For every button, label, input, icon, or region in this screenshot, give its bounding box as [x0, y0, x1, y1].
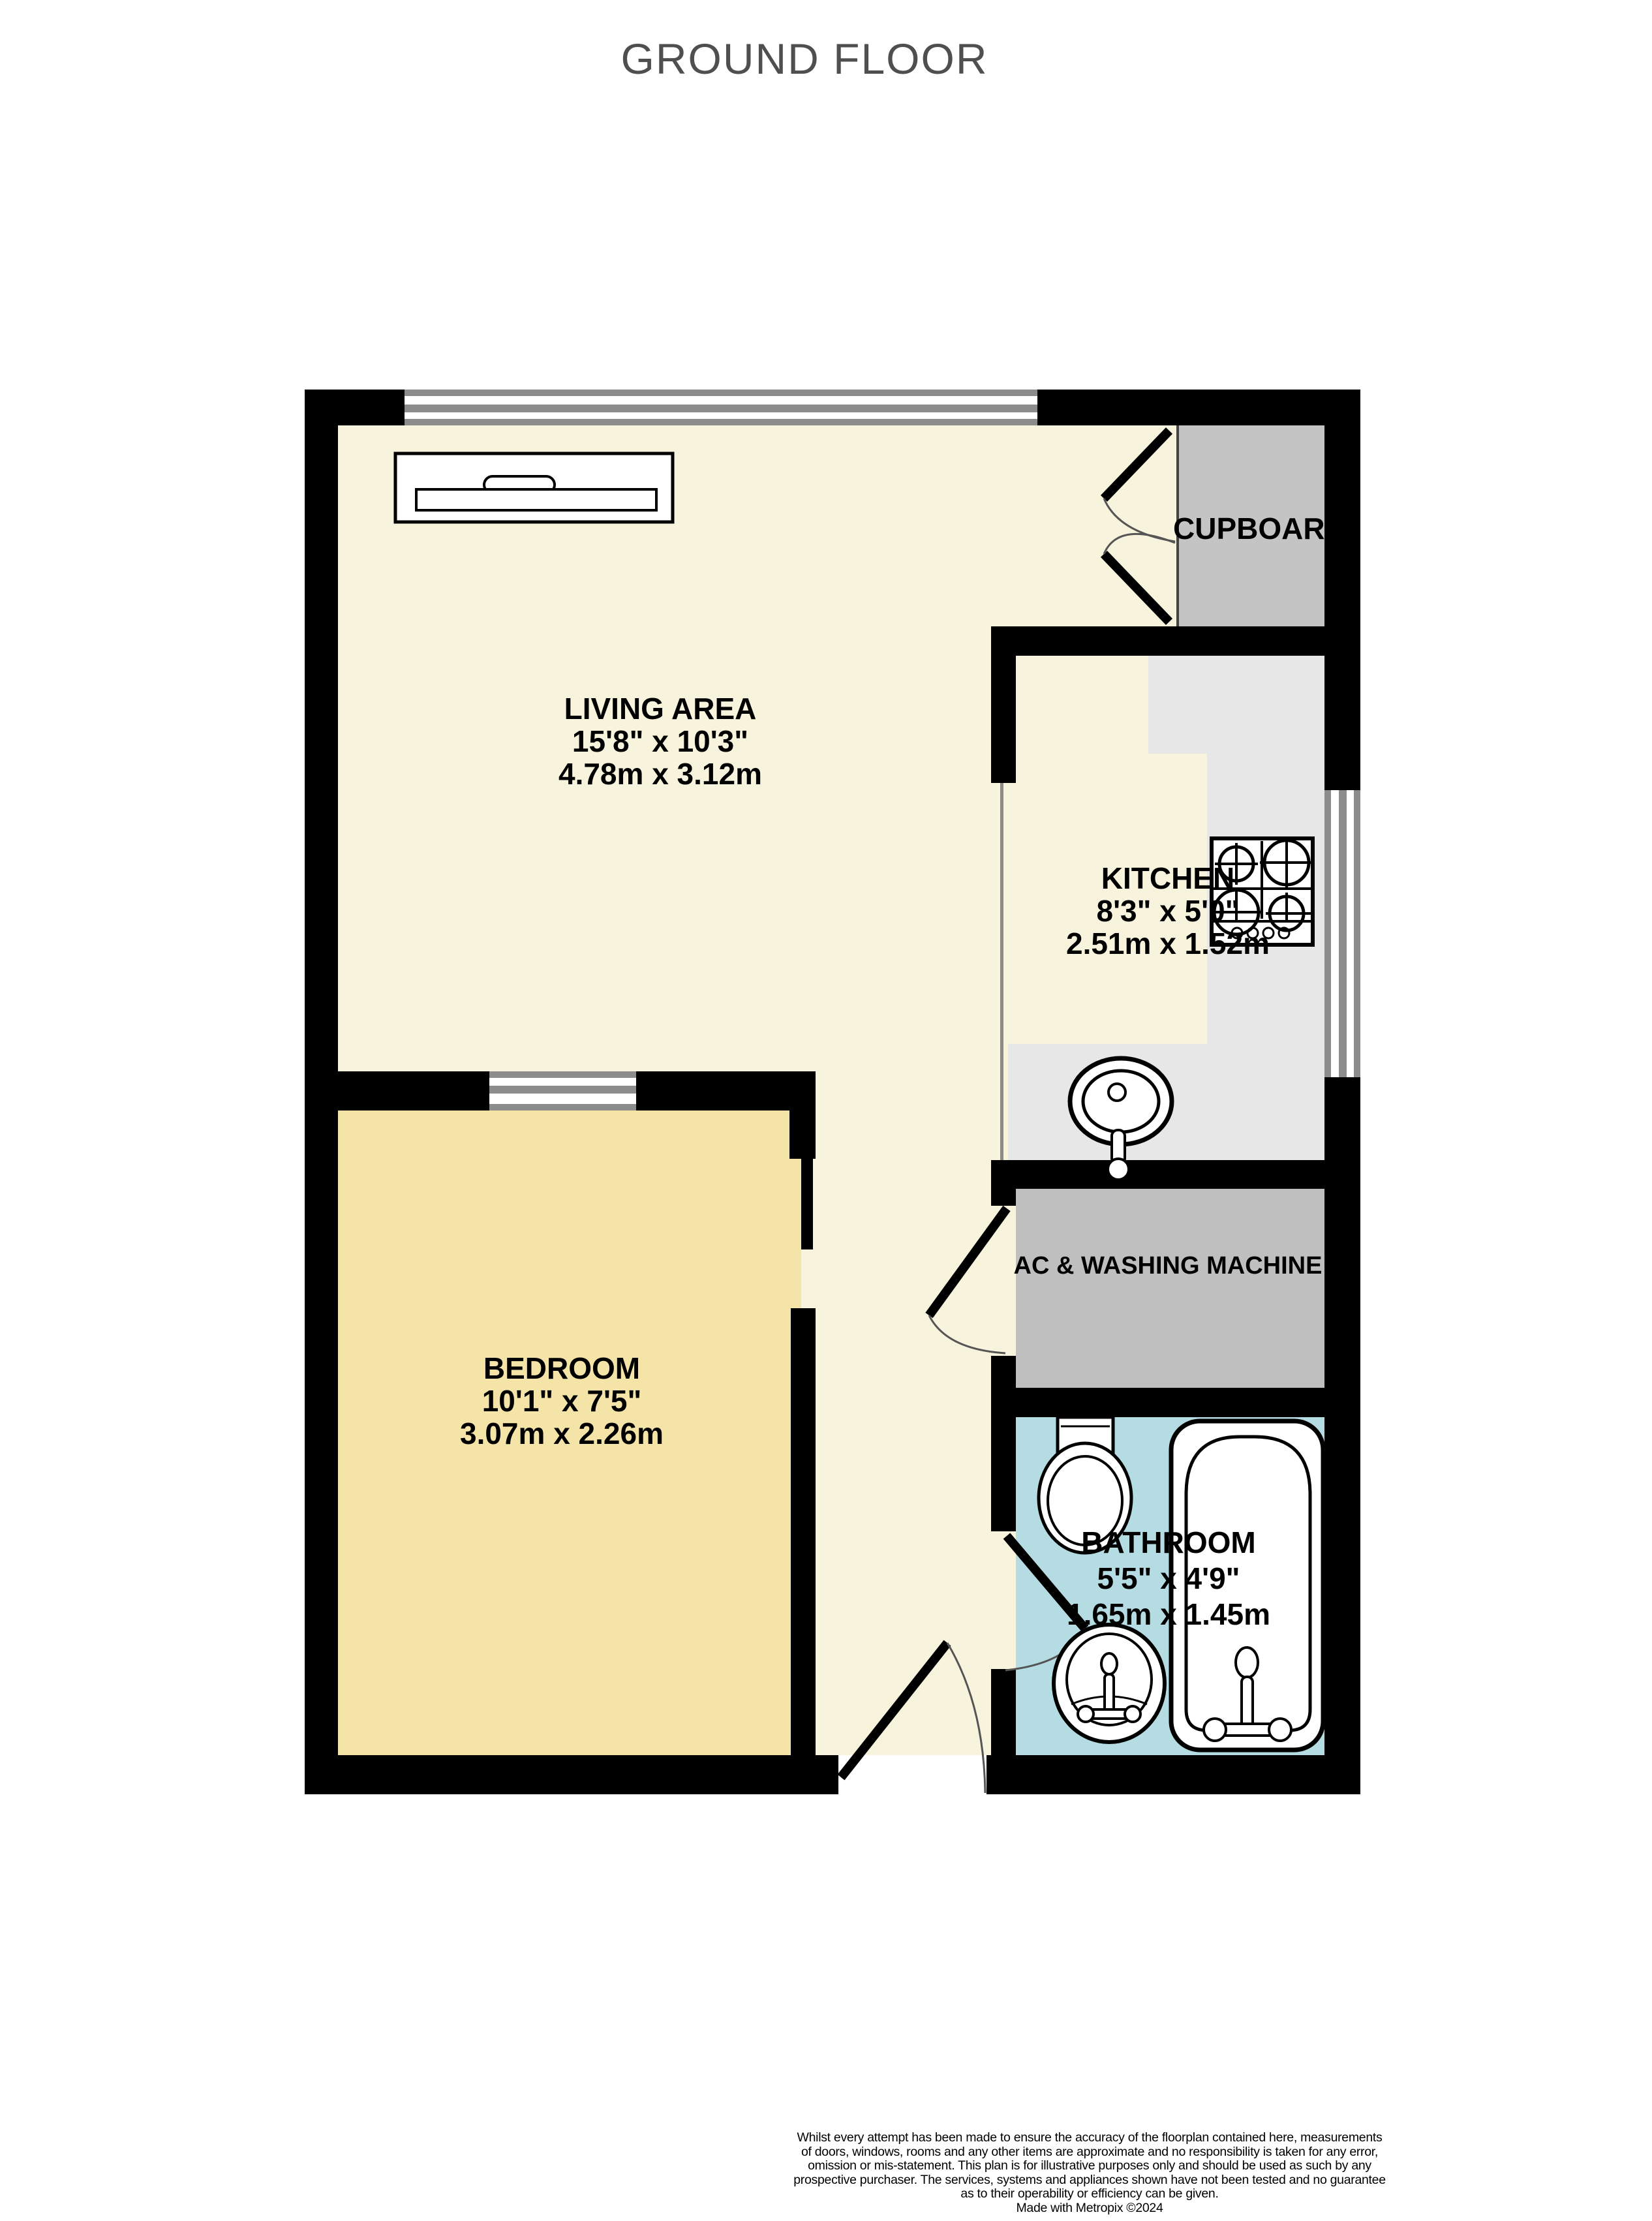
disclaimer-line: Whilst every attempt has been made to en… [665, 2131, 1514, 2145]
disclaimer: Whilst every attempt has been made to en… [665, 2131, 1514, 2215]
wall-utility-left [991, 1356, 1016, 1417]
wall-bedroom-right-thin [801, 1159, 813, 1249]
wall-bottom-right [987, 1755, 1360, 1794]
living-area-dims-metric: 4.78m x 3.12m [558, 757, 762, 791]
bathroom-label: BATHROOM [1081, 1525, 1255, 1559]
wall-bottom-left [305, 1755, 838, 1794]
bedroom-label: BEDROOM [483, 1351, 640, 1385]
bathroom-dims-metric: 1.65m x 1.45m [1067, 1597, 1270, 1631]
disclaimer-credit: Made with Metropix ©2024 [665, 2201, 1514, 2216]
wall-cupboard-bottom [991, 626, 1360, 656]
disclaimer-line: as to their operability or efficiency ca… [665, 2187, 1514, 2201]
kitchen-dims-metric: 2.51m x 1.52m [1066, 927, 1270, 960]
wall-utility-bottom [991, 1388, 1360, 1417]
window-frame-line [405, 390, 1037, 396]
wall-bathroom-left-upper [991, 1417, 1016, 1531]
wall-bathroom-left-lower [991, 1669, 1016, 1755]
kitchen-label: KITCHEN [1101, 861, 1234, 895]
disclaimer-line: prospective purchaser. The services, sys… [665, 2173, 1514, 2188]
living-area-label: LIVING AREA [564, 692, 757, 726]
living-area-dims-imperial: 15'8" x 10'3" [572, 724, 748, 758]
bedroom-dims-imperial: 10'1" x 7'5" [482, 1384, 642, 1418]
wall-bedroom-right [791, 1308, 816, 1755]
disclaimer-line: of doors, windows, rooms and any other i… [665, 2145, 1514, 2160]
wall-right [1324, 390, 1360, 1794]
window-frame-line [1354, 790, 1360, 1077]
wall-utility-left-stub [991, 1189, 1016, 1206]
window-frame-line [405, 419, 1037, 425]
kitchen-counter-area [1148, 656, 1324, 754]
utility-label: AC & WASHING MACHINE [1014, 1252, 1323, 1279]
bathroom-dims-imperial: 5'5" x 4'9" [1097, 1561, 1240, 1595]
basin-icon [1054, 1625, 1165, 1742]
bedroom-dims-metric: 3.07m x 2.26m [460, 1417, 664, 1450]
window-frame-line [1339, 790, 1347, 1077]
window-frame-line [405, 405, 1037, 412]
kitchen-dims-imperial: 8'3" x 5'0" [1097, 894, 1240, 928]
floorplan-drawing: LIVING AREA 15'8" x 10'3" 4.78m x 3.12m … [0, 0, 1652, 2221]
kitchen-open-boundary-line [1000, 783, 1003, 1160]
window-frame-line [1324, 790, 1331, 1077]
sideboard-icon [395, 453, 673, 522]
wall-kitchen-left [991, 656, 1016, 783]
cupboard-label: CUPBOARD [1173, 512, 1347, 545]
floorplan-page: GROUND FLOOR [0, 0, 1652, 2221]
wall-bedroom-corner [789, 1071, 816, 1159]
utility-floor [1016, 1189, 1324, 1388]
wall-utility-top [991, 1160, 1360, 1189]
window-frame-line [489, 1086, 636, 1094]
window-frame-line [489, 1104, 636, 1110]
disclaimer-line: omission or mis-statement. This plan is … [665, 2159, 1514, 2173]
window-frame-line [489, 1071, 636, 1078]
